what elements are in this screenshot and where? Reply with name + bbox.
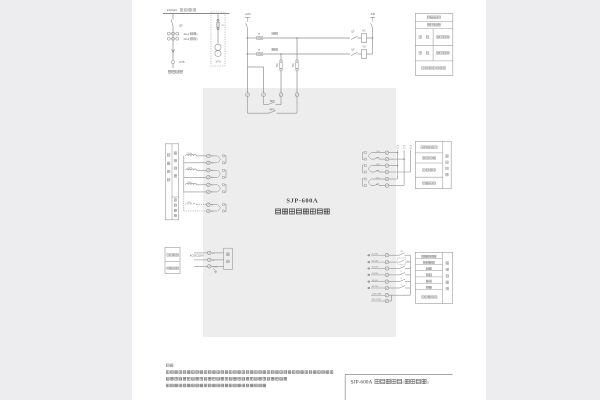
svg-text:): )	[197, 37, 198, 41]
svg-text:-KM: -KM	[370, 12, 376, 16]
svg-text:QF: QF	[179, 24, 183, 28]
svg-text:KFC: KFC	[270, 108, 275, 112]
svg-text:SG-: SG-	[376, 170, 380, 172]
svg-text:+KM: +KM	[245, 12, 251, 16]
svg-text:702: 702	[409, 148, 412, 150]
svg-text:QF: QF	[351, 48, 355, 51]
svg-text:SJP-600A: SJP-600A	[351, 380, 373, 386]
svg-text:2LHc: 2LHc	[188, 182, 192, 184]
svg-text:HC: HC	[362, 29, 366, 32]
svg-text:KFT: KFT	[270, 99, 275, 103]
svg-text:DL-: DL-	[376, 184, 380, 186]
svg-text:2LHb: 2LHb	[188, 168, 193, 170]
svg-text:QF: QF	[351, 31, 355, 34]
svg-text:YG-: YG-	[376, 157, 380, 159]
svg-text:TQ: TQ	[362, 45, 366, 48]
svg-text:701: 701	[403, 148, 406, 150]
svg-text:5Ω: 5Ω	[291, 63, 295, 67]
svg-text:5Ω: 5Ω	[275, 63, 279, 67]
svg-text:1LH(: 1LH(	[184, 32, 190, 36]
svg-text:700: 700	[396, 148, 399, 150]
svg-text:1LHB: 1LHB	[179, 61, 185, 64]
svg-text:): )	[197, 32, 198, 36]
svg-text::: :	[174, 364, 175, 368]
svg-text:AC/DC220V: AC/DC220V	[190, 255, 204, 258]
svg-text:2LH(: 2LH(	[184, 37, 190, 41]
svg-text:10(6)kV: 10(6)kV	[167, 8, 178, 12]
svg-text:SJP-600A: SJP-600A	[286, 198, 318, 205]
svg-text:1YH: 1YH	[215, 60, 220, 64]
